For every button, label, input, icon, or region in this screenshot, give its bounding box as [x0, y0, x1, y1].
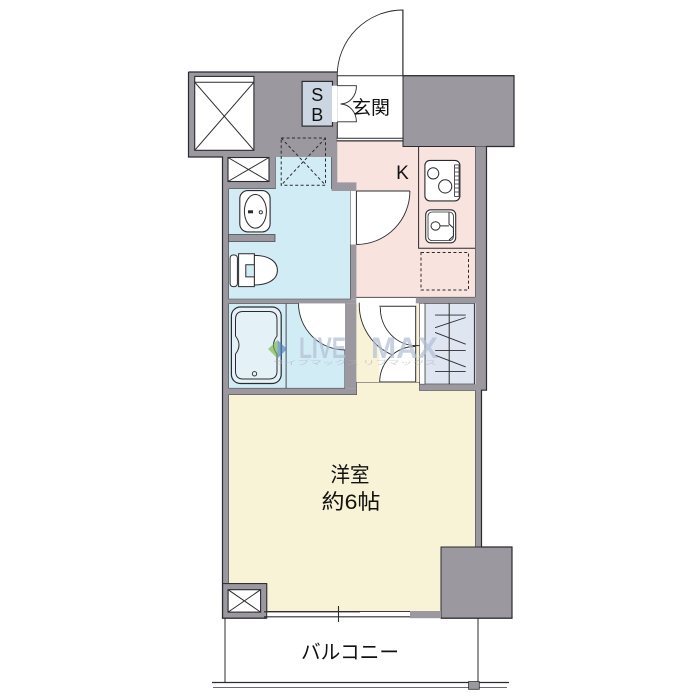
svg-text:S: S	[311, 85, 323, 105]
svg-text:洋室: 洋室	[331, 464, 370, 487]
svg-text:K: K	[396, 163, 409, 184]
svg-text:バルコニー: バルコニー	[301, 642, 399, 664]
svg-text:約6帖: 約6帖	[322, 491, 381, 514]
svg-text:B: B	[311, 105, 323, 125]
svg-text:ライブマックス リブマックス: ライブマックス リブマックス	[272, 359, 437, 367]
svg-text:玄関: 玄関	[352, 97, 390, 119]
